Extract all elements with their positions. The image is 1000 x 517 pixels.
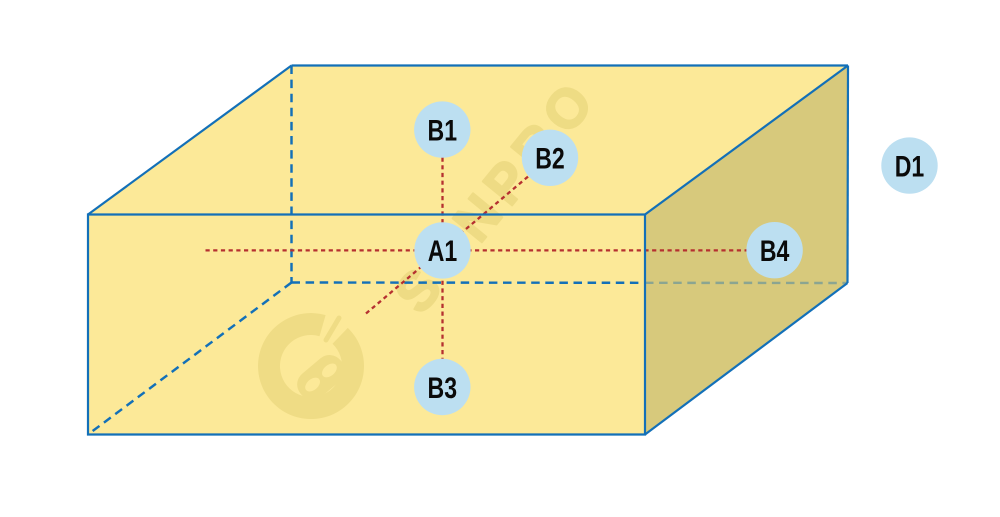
svg-text:B2: B2 (535, 143, 565, 176)
svg-text:D1: D1 (895, 150, 925, 183)
svg-text:A1: A1 (428, 235, 458, 268)
svg-text:B4: B4 (760, 235, 790, 268)
svg-text:B1: B1 (428, 114, 458, 147)
svg-text:B3: B3 (428, 372, 458, 405)
